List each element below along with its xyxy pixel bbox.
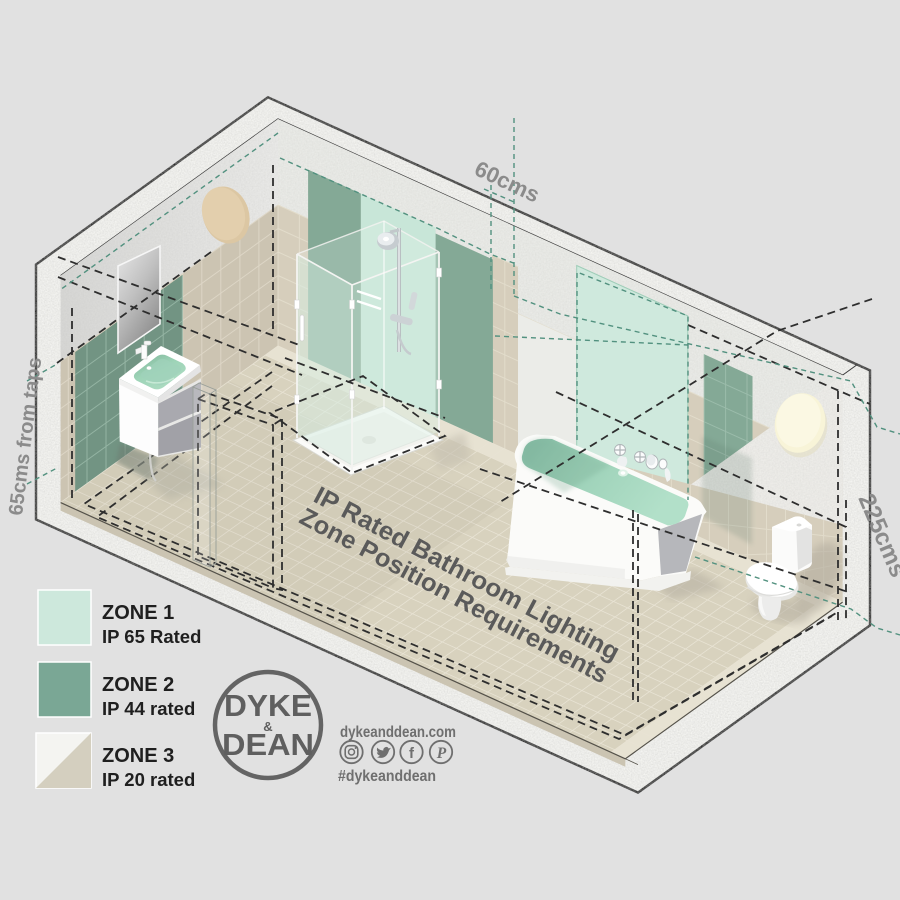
svg-text:ZONE 2: ZONE 2	[102, 674, 174, 696]
svg-text:ZONE 3: ZONE 3	[102, 745, 174, 767]
svg-text:IP 20 rated: IP 20 rated	[102, 769, 195, 790]
svg-text:DEAN: DEAN	[222, 727, 314, 762]
svg-text:IP 65 Rated: IP 65 Rated	[102, 626, 201, 647]
svg-text:DYKE: DYKE	[224, 688, 312, 723]
svg-text:ZONE 1: ZONE 1	[102, 602, 174, 624]
svg-text:dykeanddean.com: dykeanddean.com	[340, 724, 456, 741]
svg-text:P: P	[437, 745, 447, 762]
svg-text:IP 44 rated: IP 44 rated	[102, 698, 195, 719]
svg-text:#dykeanddean: #dykeanddean	[338, 768, 436, 785]
